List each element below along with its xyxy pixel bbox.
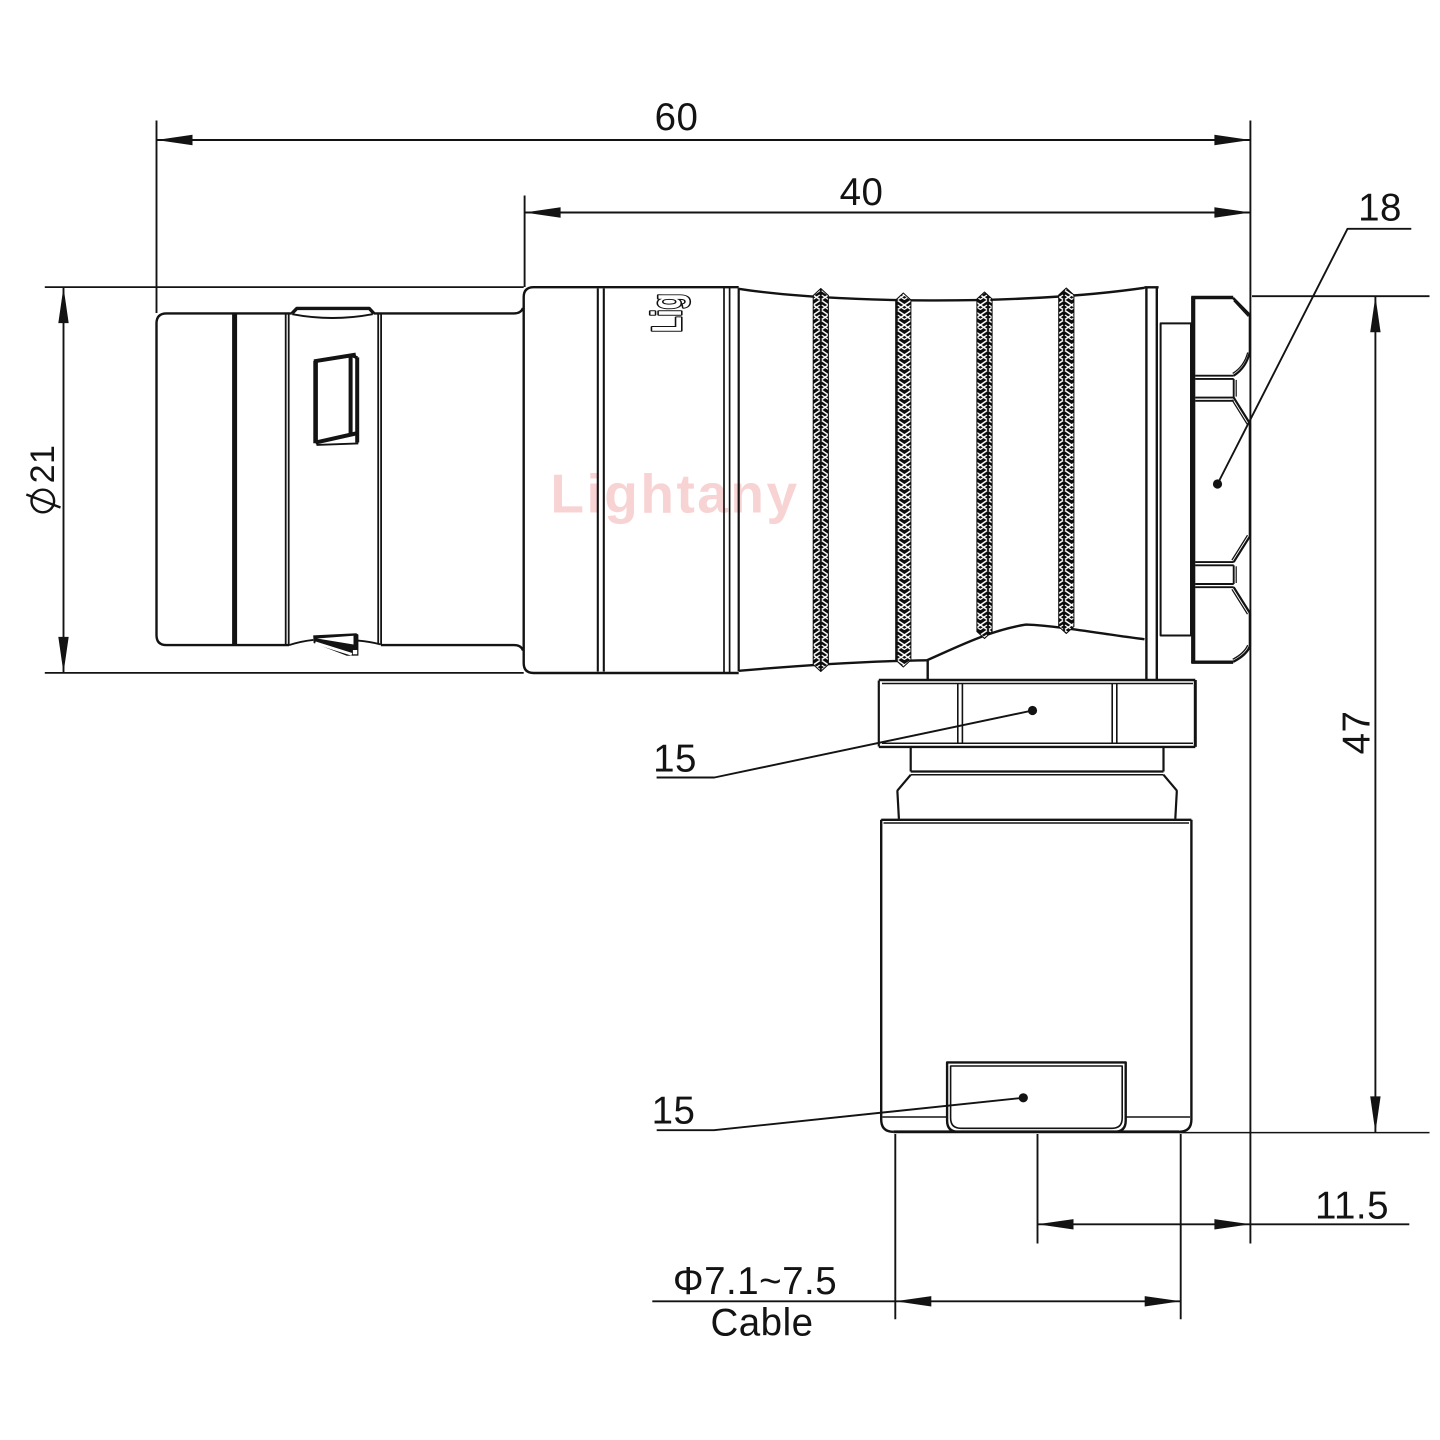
svg-text:47: 47: [1336, 711, 1379, 755]
svg-text:40: 40: [840, 171, 884, 214]
svg-text:Cable: Cable: [710, 1302, 813, 1345]
svg-text:15: 15: [653, 738, 697, 781]
svg-text:21: 21: [24, 445, 62, 484]
svg-text:15: 15: [652, 1090, 696, 1133]
svg-text:60: 60: [655, 96, 699, 139]
svg-text:Lightany: Lightany: [550, 463, 799, 525]
svg-text:Lig: Lig: [645, 294, 691, 333]
svg-text:18: 18: [1358, 187, 1402, 230]
svg-text:Φ7.1~7.5: Φ7.1~7.5: [673, 1260, 837, 1303]
svg-text:11.5: 11.5: [1315, 1185, 1389, 1228]
